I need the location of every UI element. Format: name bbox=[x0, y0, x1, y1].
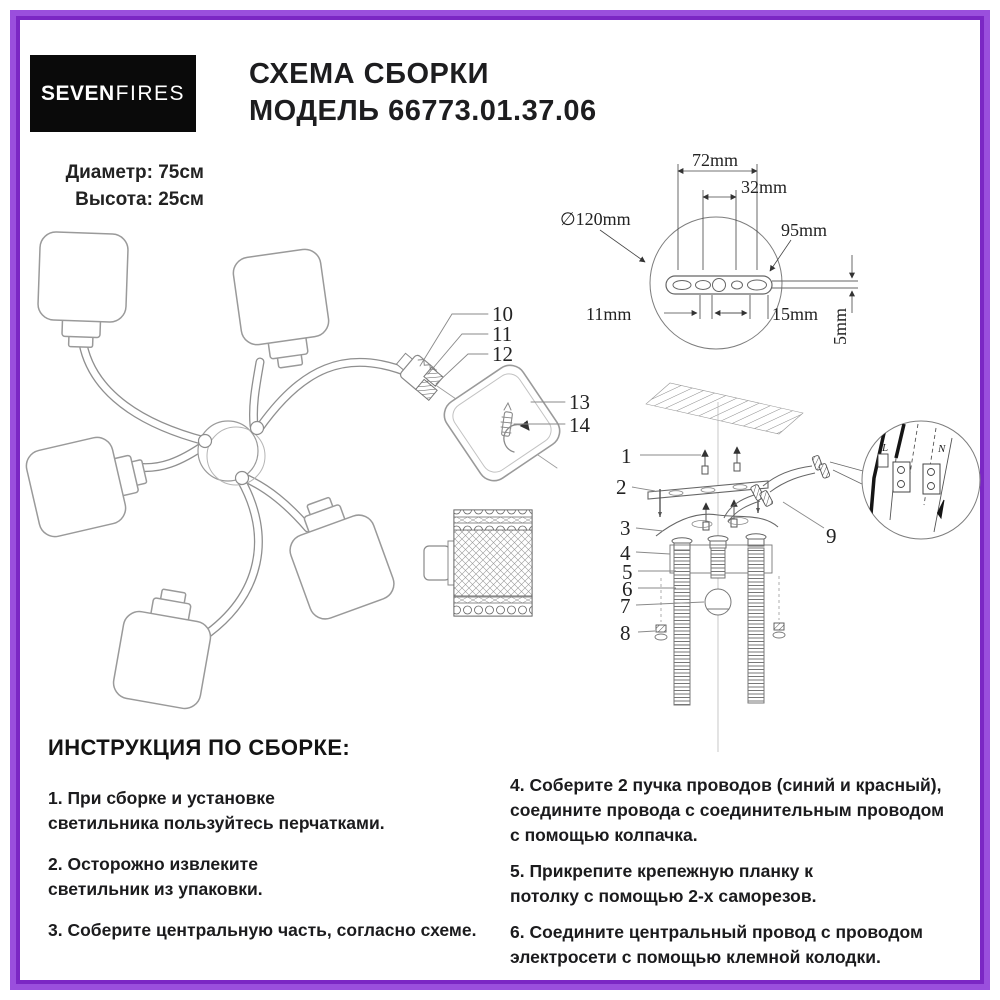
callout-7: 7 bbox=[620, 594, 631, 618]
callout-8: 8 bbox=[620, 621, 631, 645]
mounting-bar bbox=[648, 481, 768, 517]
callout-2: 2 bbox=[616, 475, 627, 499]
callout-1: 1 bbox=[621, 444, 632, 468]
dim-5mm: 5mm bbox=[830, 308, 850, 345]
terminal-label-l: L bbox=[881, 442, 888, 454]
mounting-diagram: 1 2 3 4 5 6 7 8 9 bbox=[616, 383, 980, 752]
dim-15mm: 15mm bbox=[772, 304, 818, 324]
instruction-step-3: 3. Соберите центральную часть, согласно … bbox=[48, 918, 488, 943]
instructions-column-left: 1. При сборке и установке светильника по… bbox=[48, 786, 488, 959]
terminal-detail: L N bbox=[862, 421, 980, 539]
dim-120mm: ∅120mm bbox=[560, 209, 631, 229]
shade-left bbox=[23, 428, 154, 539]
dim-11mm: 11mm bbox=[586, 304, 631, 324]
shade-top-left bbox=[37, 231, 129, 348]
socket-assembly bbox=[392, 348, 447, 400]
dim-32mm: 32mm bbox=[741, 177, 787, 197]
dim-72mm: 72mm bbox=[692, 150, 738, 170]
instruction-step-1: 1. При сборке и установке светильника по… bbox=[48, 786, 488, 836]
instruction-step-2: 2. Осторожно извлеките светильник из упа… bbox=[48, 852, 488, 902]
bracket-dimension-detail: 72mm 32mm ∅120mm 95mm 11mm 15mm 5mm bbox=[560, 150, 858, 349]
chandelier-drawing: 10 11 12 13 14 bbox=[23, 231, 590, 710]
title-line-2: МОДЕЛЬ 66773.01.37.06 bbox=[249, 93, 597, 130]
shade-bottom bbox=[111, 583, 217, 711]
terminal-label-n: N bbox=[937, 443, 946, 455]
center-hub bbox=[198, 421, 265, 485]
instructions-heading: ИНСТРУКЦИЯ ПО СБОРКЕ: bbox=[48, 735, 350, 761]
center-stub bbox=[711, 548, 725, 578]
lamp-holder bbox=[705, 589, 731, 615]
instructions-column-right: 4. Соберите 2 пучка проводов (синий и кр… bbox=[510, 773, 970, 981]
brand-logo-bold: SEVEN bbox=[41, 82, 115, 106]
shade-detached bbox=[438, 359, 566, 487]
wire-bundle bbox=[724, 462, 864, 522]
shade-top-middle bbox=[231, 247, 334, 372]
callout-12: 12 bbox=[492, 342, 513, 366]
callout-3: 3 bbox=[620, 516, 631, 540]
instruction-step-6: 6. Соедините центральный провод с провод… bbox=[510, 920, 970, 970]
brand-logo: SEVENFIRES bbox=[30, 55, 196, 132]
dim-95mm: 95mm bbox=[781, 220, 827, 240]
brand-logo-light: FIRES bbox=[116, 82, 185, 106]
instruction-step-5: 5. Прикрепите крепежную планку к потолку… bbox=[510, 859, 970, 909]
callout-9: 9 bbox=[826, 524, 837, 548]
instruction-step-4: 4. Соберите 2 пучка проводов (синий и кр… bbox=[510, 773, 970, 848]
shade-bottom-middle bbox=[277, 486, 399, 623]
threaded-rod-right bbox=[748, 548, 764, 703]
callout-14: 14 bbox=[569, 413, 591, 437]
page-title: СХЕМА СБОРКИ МОДЕЛЬ 66773.01.37.06 bbox=[249, 56, 597, 130]
canopy-plate bbox=[656, 514, 778, 536]
assembly-diagram: 10 11 12 13 14 bbox=[0, 130, 1000, 760]
title-line-1: СХЕМА СБОРКИ bbox=[249, 56, 597, 93]
assembly-sheet: { "header": { "logo_bold": "SEVEN", "log… bbox=[0, 0, 1000, 1000]
fabric-shade-detail bbox=[424, 510, 532, 616]
callout-13: 13 bbox=[569, 390, 590, 414]
threaded-rod-left bbox=[674, 550, 690, 705]
